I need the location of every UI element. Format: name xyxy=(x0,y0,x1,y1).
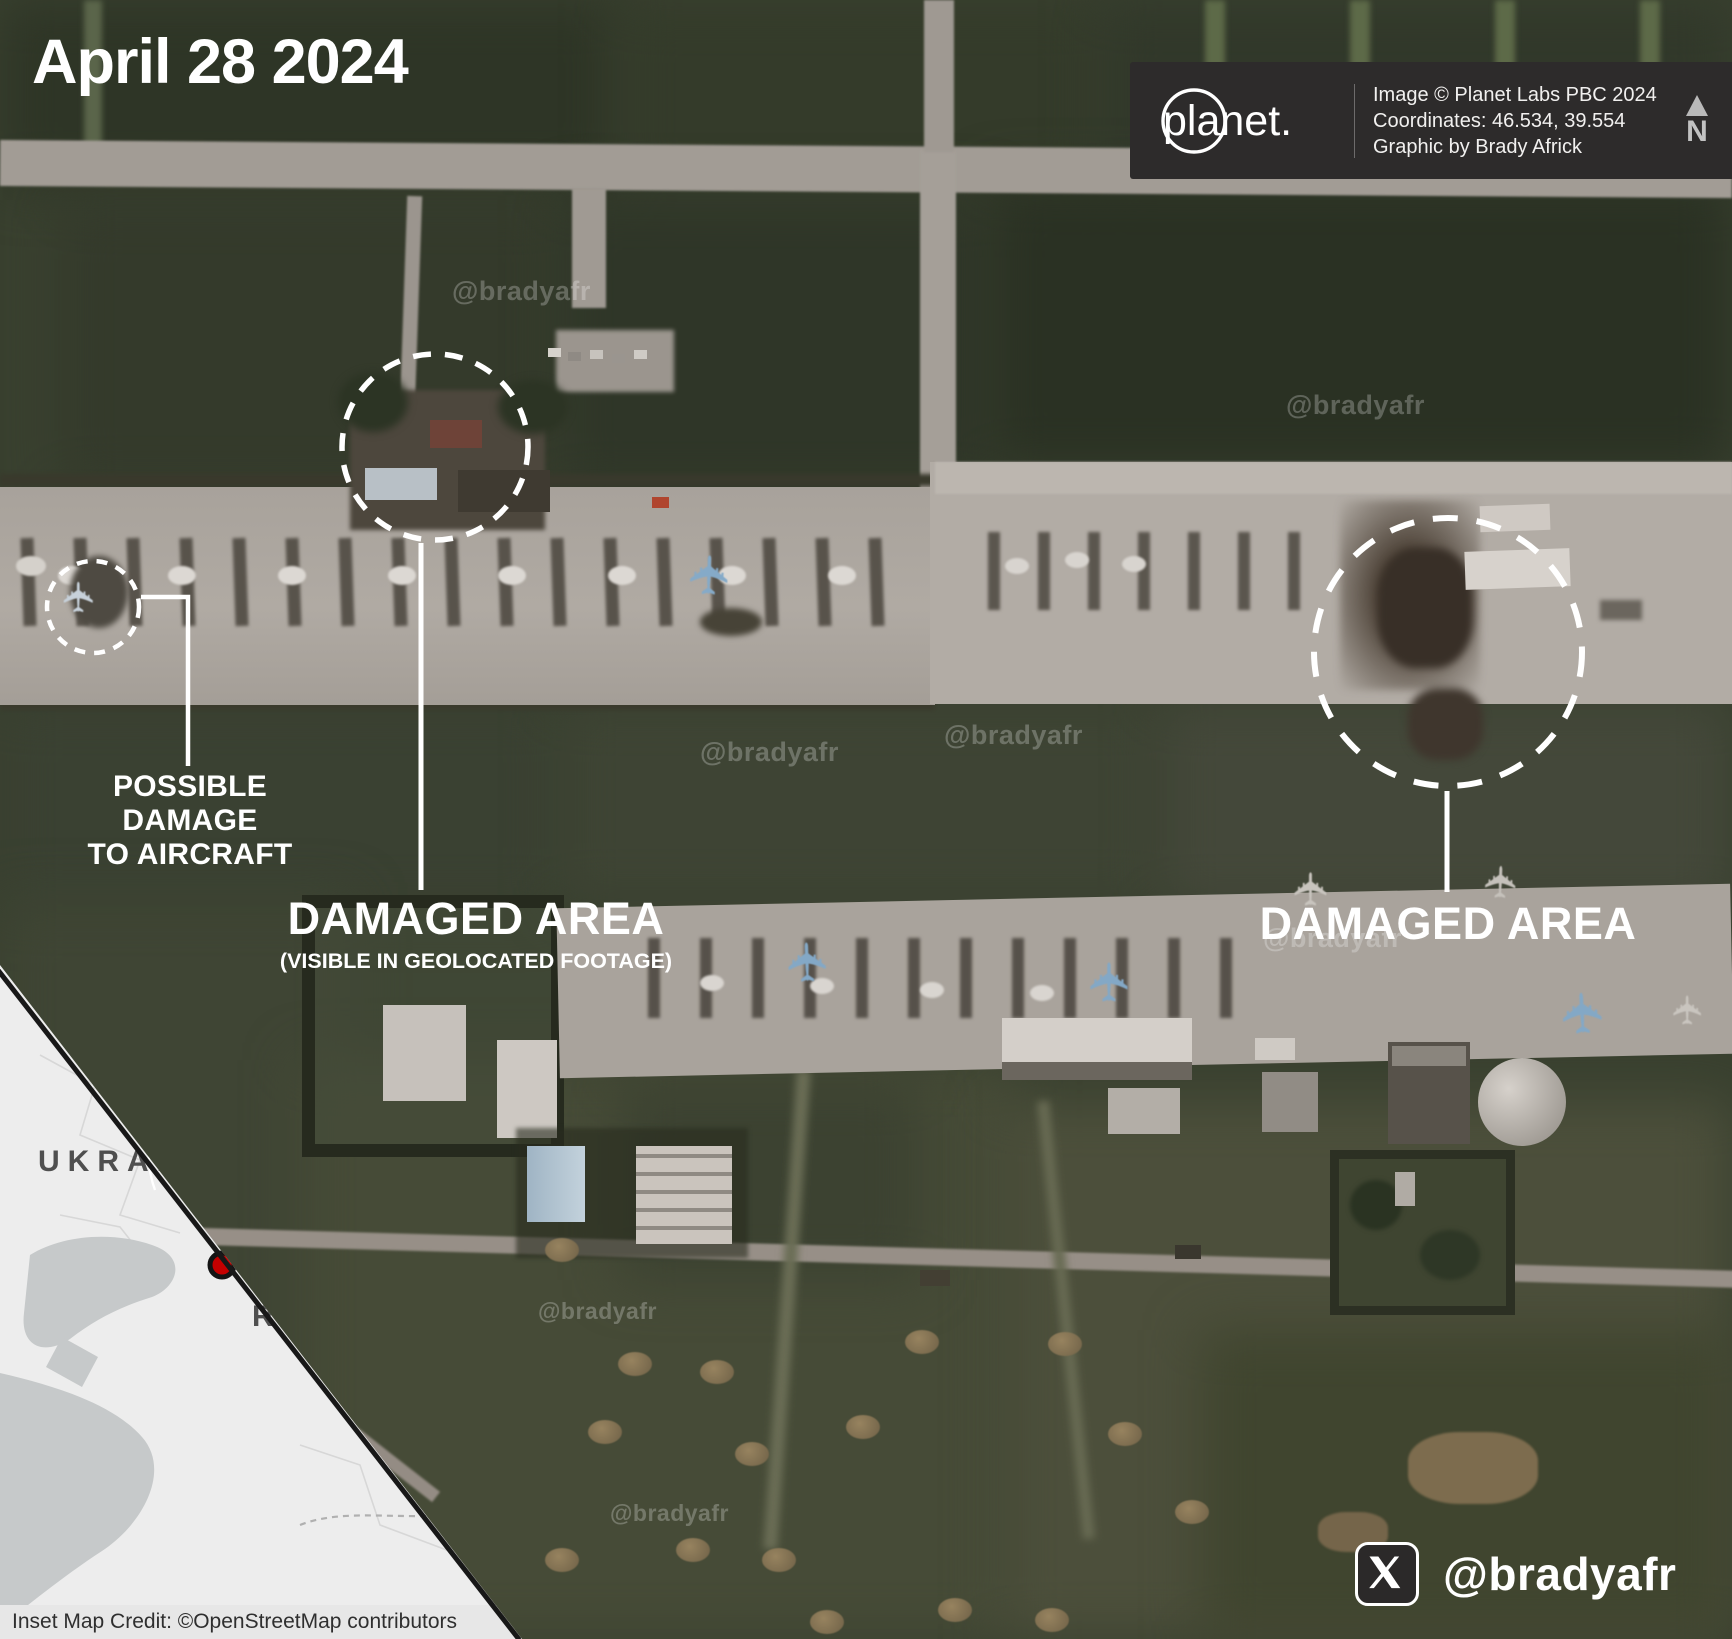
haystack xyxy=(1175,1500,1209,1524)
dashed-circle-right xyxy=(1314,518,1582,786)
haystack xyxy=(762,1548,796,1572)
apron-marking xyxy=(828,566,856,585)
planet-logo: planet. xyxy=(1156,81,1342,161)
apron-marking xyxy=(16,556,46,576)
apron-marking xyxy=(700,975,724,991)
apron-marking xyxy=(920,982,944,998)
blast-mark xyxy=(73,538,89,626)
aircraft-icon: ✈ xyxy=(1669,993,1709,1027)
blast-mark xyxy=(391,538,407,626)
trees xyxy=(1350,1180,1402,1230)
haystack xyxy=(700,1360,734,1384)
dirt-track xyxy=(1037,1101,1095,1540)
apron-marking xyxy=(718,566,746,585)
blast-mark xyxy=(700,938,712,1018)
building xyxy=(497,1040,557,1138)
apron-marking xyxy=(498,566,526,585)
map-credit-bar: Inset Map Credit: ©OpenStreetMap contrib… xyxy=(0,1605,540,1639)
blast-mark xyxy=(1238,532,1250,610)
taxiway xyxy=(935,462,1732,494)
map-label-russia: RUSSIA xyxy=(252,1300,413,1334)
apron-marking xyxy=(388,566,416,585)
credit-line-2: Coordinates: 46.534, 39.554 xyxy=(1373,108,1657,134)
label-title: DAMAGED AREA xyxy=(256,896,696,942)
watermark: @bradyafr xyxy=(610,1500,729,1527)
hangar xyxy=(1388,1042,1470,1144)
haystack xyxy=(1048,1332,1082,1356)
inset-map-graphic xyxy=(0,965,540,1639)
vehicle xyxy=(920,1270,950,1286)
inset-map: UKRAINE RUSSIA Inset Map Credit: ©OpenSt… xyxy=(0,965,540,1639)
blast-mark xyxy=(804,938,816,1018)
walled-yard xyxy=(1330,1150,1515,1315)
apron-marking xyxy=(58,566,86,585)
blast-mark xyxy=(709,538,725,626)
aircraft-icon: ✈ xyxy=(1554,988,1612,1038)
apron-marking xyxy=(168,566,196,585)
watermark: @bradyafr xyxy=(944,720,1083,751)
label-line: TO AIRCRAFT xyxy=(55,838,325,872)
grass-field xyxy=(990,180,1732,470)
blast-mark xyxy=(603,538,619,626)
hedge xyxy=(0,700,935,710)
haystack xyxy=(676,1538,710,1562)
blast-mark xyxy=(762,538,778,626)
map-credit-text: Inset Map Credit: ©OpenStreetMap contrib… xyxy=(12,1610,457,1634)
building xyxy=(1262,1072,1318,1132)
vehicle xyxy=(1175,1245,1201,1259)
apron-marking xyxy=(1030,985,1054,1001)
road xyxy=(397,196,422,496)
vehicle xyxy=(568,352,581,361)
watermark: @bradyafr xyxy=(538,1298,657,1325)
shadow xyxy=(70,556,128,628)
dirt-track xyxy=(763,1070,810,1550)
x-logo-icon xyxy=(1355,1542,1419,1606)
vehicle xyxy=(652,497,669,508)
map-label-ukraine: UKRAINE xyxy=(38,1145,231,1179)
aircraft-icon: ✈ xyxy=(683,551,739,598)
aircraft-icon: ✈ xyxy=(59,579,101,614)
building xyxy=(365,468,437,500)
credit-line-3: Graphic by Brady Africk xyxy=(1373,134,1657,160)
blast-mark xyxy=(1064,938,1076,1018)
dashed-circle-left xyxy=(342,354,528,540)
north-arrow: N xyxy=(1686,95,1708,146)
planet-logo-text: planet. xyxy=(1163,97,1292,145)
blast-mark xyxy=(908,938,920,1018)
haystack xyxy=(938,1598,972,1622)
haystack xyxy=(735,1442,769,1466)
apron-marking xyxy=(1065,552,1089,568)
blast-mark xyxy=(20,538,36,626)
divider xyxy=(1354,84,1355,158)
haystack xyxy=(1035,1608,1069,1632)
blast-mark xyxy=(1288,532,1300,610)
haystack xyxy=(846,1415,880,1439)
building xyxy=(636,1146,732,1244)
trees xyxy=(498,380,568,434)
vehicle xyxy=(548,348,561,357)
blast-mark xyxy=(444,538,460,626)
north-label: N xyxy=(1686,118,1708,146)
road xyxy=(924,0,954,152)
haystack xyxy=(1408,1432,1538,1504)
grass-field xyxy=(560,195,990,495)
building xyxy=(1255,1038,1295,1060)
dome-building xyxy=(1478,1058,1566,1146)
burn-mark xyxy=(1408,688,1483,760)
blast-mark xyxy=(988,532,1000,610)
vehicle xyxy=(590,350,603,359)
label-subtitle: (VISIBLE IN GEOLOCATED FOOTAGE) xyxy=(256,949,696,974)
vehicle xyxy=(612,354,625,363)
watermark: @bradyafr xyxy=(1263,923,1402,954)
blast-mark xyxy=(1038,532,1050,610)
apron xyxy=(0,487,935,705)
watermark: @bradyafr xyxy=(700,737,839,768)
blast-mark xyxy=(338,538,354,626)
building xyxy=(1108,1088,1180,1134)
label-damaged-area-left: DAMAGED AREA (VISIBLE IN GEOLOCATED FOOT… xyxy=(256,896,696,974)
credit-box: planet. Image © Planet Labs PBC 2024 Coo… xyxy=(1130,62,1732,179)
burn-mark xyxy=(1340,500,1480,690)
building xyxy=(383,1005,466,1101)
building xyxy=(1002,1062,1192,1080)
credit-line-1: Image © Planet Labs PBC 2024 xyxy=(1373,82,1657,108)
vehicle xyxy=(634,350,647,359)
aircraft-icon: ✈ xyxy=(1084,959,1138,1004)
aircraft-icon: ✈ xyxy=(1480,863,1525,901)
blast-mark xyxy=(856,938,868,1018)
shadow xyxy=(700,608,762,636)
page-title: April 28 2024 xyxy=(32,26,408,98)
watermark: @bradyafr xyxy=(452,276,591,307)
parking-area xyxy=(556,330,674,392)
watermark: @bradyafr xyxy=(1286,390,1425,421)
grass-field xyxy=(620,0,1100,195)
blast-mark xyxy=(1116,938,1128,1018)
building xyxy=(527,1146,585,1222)
building xyxy=(1464,548,1570,590)
blast-mark xyxy=(752,938,764,1018)
road xyxy=(80,1225,1732,1289)
trees xyxy=(338,372,408,432)
dashed-circle-aircraft xyxy=(47,561,139,653)
blast-mark xyxy=(815,538,831,626)
blast-mark xyxy=(497,538,513,626)
blast-mark xyxy=(1188,532,1200,610)
haystack xyxy=(1108,1422,1142,1446)
label-possible-damage: POSSIBLE DAMAGE TO AIRCRAFT xyxy=(55,770,325,872)
leader-line-aircraft xyxy=(141,597,188,766)
social-attribution: @bradyafr xyxy=(1355,1542,1676,1606)
apron-marking xyxy=(1005,558,1029,574)
haystack xyxy=(810,1610,844,1634)
building xyxy=(1002,1018,1192,1062)
blast-mark xyxy=(285,538,301,626)
building xyxy=(1480,504,1551,532)
graphic-canvas: ✈✈✈✈✈✈✈✈ POSSIBLE DAMAGE TO AIRCRAFT DAM… xyxy=(0,0,1732,1639)
haystack xyxy=(905,1330,939,1354)
north-arrow-icon xyxy=(1686,95,1708,116)
grass-field xyxy=(60,200,560,490)
debris xyxy=(1600,600,1642,620)
haystack xyxy=(545,1238,579,1262)
haystack xyxy=(618,1352,652,1376)
blast-mark xyxy=(550,538,566,626)
building xyxy=(458,470,550,512)
blast-mark xyxy=(1138,532,1150,610)
haystack xyxy=(588,1420,622,1444)
compound xyxy=(516,1128,748,1258)
blast-mark xyxy=(1168,938,1180,1018)
apron-marking xyxy=(810,978,834,994)
hangar xyxy=(1392,1046,1466,1066)
haystack xyxy=(545,1548,579,1572)
aircraft-icon: ✈ xyxy=(781,938,837,985)
blast-mark xyxy=(960,938,972,1018)
hedge xyxy=(0,474,935,486)
apron-marking xyxy=(608,566,636,585)
label-line: POSSIBLE DAMAGE xyxy=(55,770,325,838)
blast-mark xyxy=(1220,938,1232,1018)
building-cluster xyxy=(350,390,545,530)
apron-marking xyxy=(1122,556,1146,572)
blast-mark xyxy=(1088,532,1100,610)
apron xyxy=(930,462,1732,704)
blast-mark xyxy=(656,538,672,626)
location-marker xyxy=(210,1253,234,1277)
trees xyxy=(1420,1230,1480,1280)
blast-mark xyxy=(868,538,884,626)
blast-mark xyxy=(179,538,195,626)
apron-marking xyxy=(278,566,306,585)
social-handle: @bradyafr xyxy=(1443,1547,1676,1601)
vehicle xyxy=(1395,1172,1415,1206)
blast-mark xyxy=(232,538,248,626)
grass-field xyxy=(1160,700,1732,910)
road xyxy=(920,150,956,495)
blast-mark xyxy=(126,538,142,626)
grass-field xyxy=(620,1080,920,1280)
burn-mark xyxy=(1378,548,1473,668)
blast-mark xyxy=(1012,938,1024,1018)
building xyxy=(430,420,482,448)
